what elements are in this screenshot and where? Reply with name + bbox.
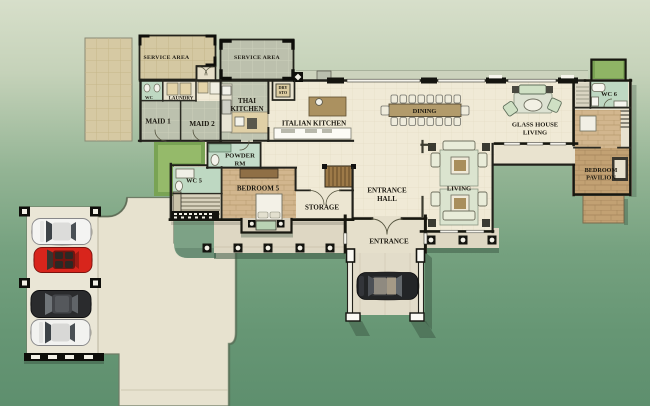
- svg-text:MAID 2: MAID 2: [189, 120, 215, 128]
- svg-text:WC 5: WC 5: [186, 178, 202, 185]
- svg-text:PAVILION: PAVILION: [586, 175, 616, 182]
- svg-text:STO: STO: [279, 90, 288, 95]
- svg-text:LIVING: LIVING: [523, 130, 547, 137]
- svg-text:WC: WC: [145, 95, 153, 100]
- svg-text:ITALIAN KITCHEN: ITALIAN KITCHEN: [282, 120, 346, 128]
- svg-text:KITCHEN: KITCHEN: [230, 105, 263, 113]
- svg-text:DINING: DINING: [413, 108, 437, 115]
- svg-text:BEDROOM: BEDROOM: [585, 167, 618, 174]
- svg-text:LAUNDRY: LAUNDRY: [169, 97, 194, 102]
- svg-text:THAI: THAI: [238, 97, 256, 105]
- svg-text:HALL: HALL: [377, 195, 397, 203]
- svg-text:GLASS HOUSE: GLASS HOUSE: [512, 122, 559, 129]
- svg-text:RM: RM: [235, 161, 247, 168]
- svg-text:WC 6: WC 6: [601, 91, 618, 98]
- svg-text:SERVICE AREA: SERVICE AREA: [144, 55, 191, 61]
- svg-text:MAID 1: MAID 1: [145, 118, 171, 126]
- svg-text:BEDROOM 5: BEDROOM 5: [237, 185, 280, 193]
- svg-text:STORAGE: STORAGE: [305, 204, 339, 212]
- svg-text:ENTRANCE: ENTRANCE: [369, 238, 409, 246]
- svg-text:ENTRANCE: ENTRANCE: [367, 187, 407, 195]
- svg-text:LIVING: LIVING: [447, 186, 471, 193]
- svg-text:SERVICE AREA: SERVICE AREA: [234, 55, 281, 61]
- svg-text:POWDER: POWDER: [225, 153, 255, 160]
